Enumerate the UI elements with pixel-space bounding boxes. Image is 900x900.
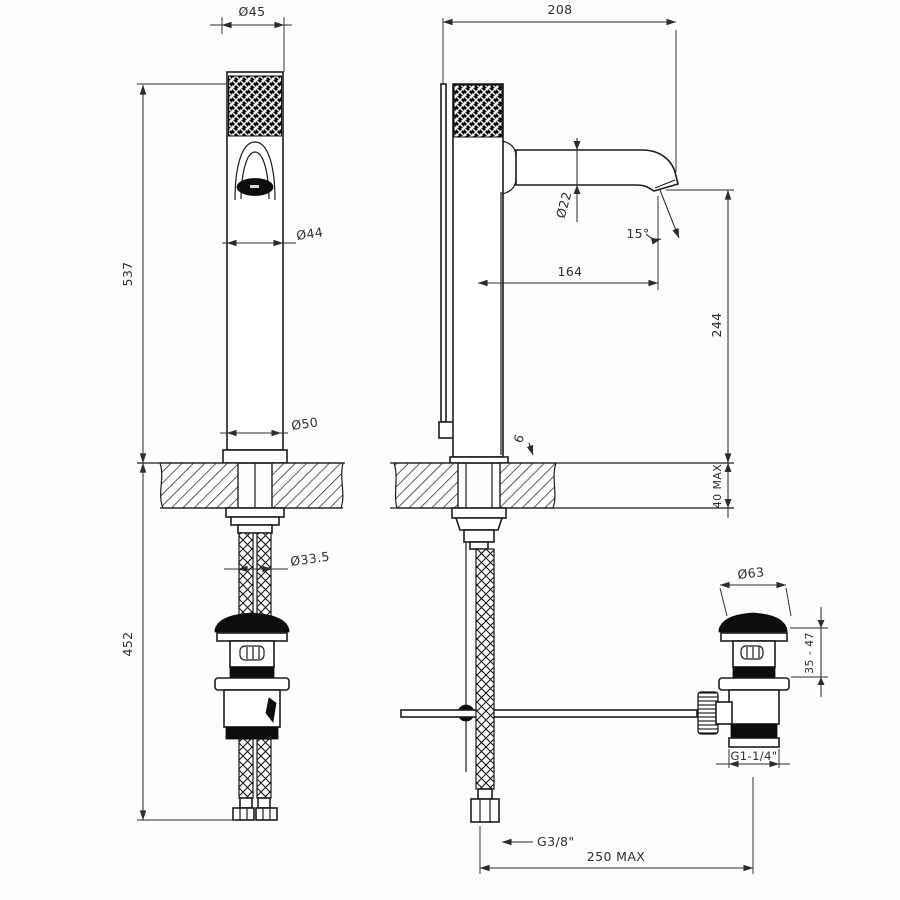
drain-body (733, 641, 775, 667)
drain-cylinder (729, 690, 779, 724)
flex-hose (476, 549, 494, 789)
washer (452, 508, 506, 518)
spout-arm (516, 150, 678, 191)
knurled-handle-front (229, 76, 282, 136)
dim-drain-cap-diameter: Ø63 (737, 564, 765, 582)
drain-flange (215, 678, 289, 690)
base-flange-front (223, 450, 287, 463)
dim-arrow (725, 463, 732, 472)
hose-neck (470, 542, 488, 549)
drain-knob (698, 692, 718, 734)
pull-rod (441, 84, 446, 422)
popup-drain-side: Ø63 35 - 47 G1-1/4" (698, 564, 828, 768)
dim-drain-clamp-range: 35 - 47 (803, 632, 816, 674)
dim-arrow (574, 185, 581, 194)
dim-deck-thickness-max: 40 MAX (711, 464, 724, 509)
base-plate-side (450, 457, 508, 463)
dim-below-deck-length: 452 (120, 631, 135, 656)
angle-line (660, 190, 679, 238)
drain-flange (719, 678, 789, 690)
hose-collar (240, 798, 252, 808)
faucet-body-front (223, 72, 287, 463)
ext-line (720, 588, 727, 616)
technical-drawing-page: Ø45 537 Ø44 Ø50 Ø33.5 452 (0, 0, 900, 900)
drain-tailpiece (729, 738, 779, 747)
washer (226, 508, 284, 517)
hose-collar (478, 789, 492, 799)
deck-hatch-left (160, 463, 238, 508)
dim-hose-reach-max: 250 MAX (587, 849, 646, 864)
drain-seal-band (733, 667, 775, 678)
dim-base-plate-height: 6 (510, 432, 527, 445)
hose-nut (471, 799, 499, 822)
mounting-nut (231, 517, 279, 525)
dim-hose-thread: G3/8" (537, 834, 575, 849)
dim-hose-diameter: Ø33.5 (289, 549, 330, 569)
dim-total-height: 537 (120, 261, 135, 286)
hose-nut (233, 808, 254, 820)
dim-cap-diameter: Ø45 (239, 4, 266, 19)
aerator-highlight (250, 185, 259, 188)
supply-hose-side (471, 549, 499, 822)
flex-hose-left-lower (239, 739, 253, 798)
dim-spout-projection: 164 (557, 264, 582, 279)
spout-flare-bottom (502, 178, 516, 194)
hose-nut (256, 808, 277, 820)
dim-base-diameter: Ø50 (290, 414, 319, 433)
under-deck-fittings-side (401, 508, 697, 772)
hose-collar (258, 798, 270, 808)
drain-thread-band (731, 724, 777, 738)
dim-arrow (725, 499, 732, 508)
deck-hatch-right (272, 463, 343, 508)
side-view: 208 Ø22 15° 164 244 40 MAX (390, 2, 828, 874)
leader-line (529, 443, 533, 455)
drain-thread-band (226, 727, 278, 739)
under-deck-fittings-front (226, 508, 284, 533)
drain-washer (721, 633, 787, 641)
drain-washer (217, 633, 287, 641)
flex-hose-right-lower (257, 739, 271, 798)
dim-outlet-height: 244 (709, 312, 724, 337)
mounting-nut (456, 518, 502, 530)
dim-drain-thread: G1-1/4" (731, 749, 778, 763)
dim-outlet-angle: 15° (626, 226, 649, 241)
dim-arrow (818, 620, 825, 628)
shank-fitting (238, 525, 272, 533)
faucet-dimension-drawing: Ø45 537 Ø44 Ø50 Ø33.5 452 (0, 0, 900, 900)
deck-hatch-right (500, 463, 556, 508)
faucet-column-side (453, 84, 503, 457)
popup-drain-front (215, 613, 289, 739)
drain-cap (719, 613, 787, 632)
dim-arrow (574, 141, 581, 150)
deck-hatch-left (394, 463, 458, 508)
dim-outlet-diameter: Ø22 (553, 190, 574, 220)
drain-seal-band (230, 667, 274, 678)
drain-cap (215, 613, 289, 632)
horizontal-linkage-rod (401, 710, 697, 717)
spout-flare-top (502, 141, 516, 157)
ext-line (786, 588, 791, 616)
shank-fitting (464, 530, 494, 542)
knob-connector (716, 702, 732, 724)
mounting-deck-front (137, 463, 345, 508)
knurled-handle-side (454, 85, 502, 137)
front-view: Ø45 537 Ø44 Ø50 Ø33.5 452 (120, 4, 345, 820)
dim-body-diameter: Ø44 (295, 224, 324, 243)
flex-hose-left (239, 533, 253, 617)
flex-hose-right (257, 533, 271, 617)
drain-body (230, 641, 274, 667)
dim-spout-reach: 208 (547, 2, 572, 17)
mounting-deck-side (390, 463, 734, 508)
dim-arrow (818, 677, 825, 685)
